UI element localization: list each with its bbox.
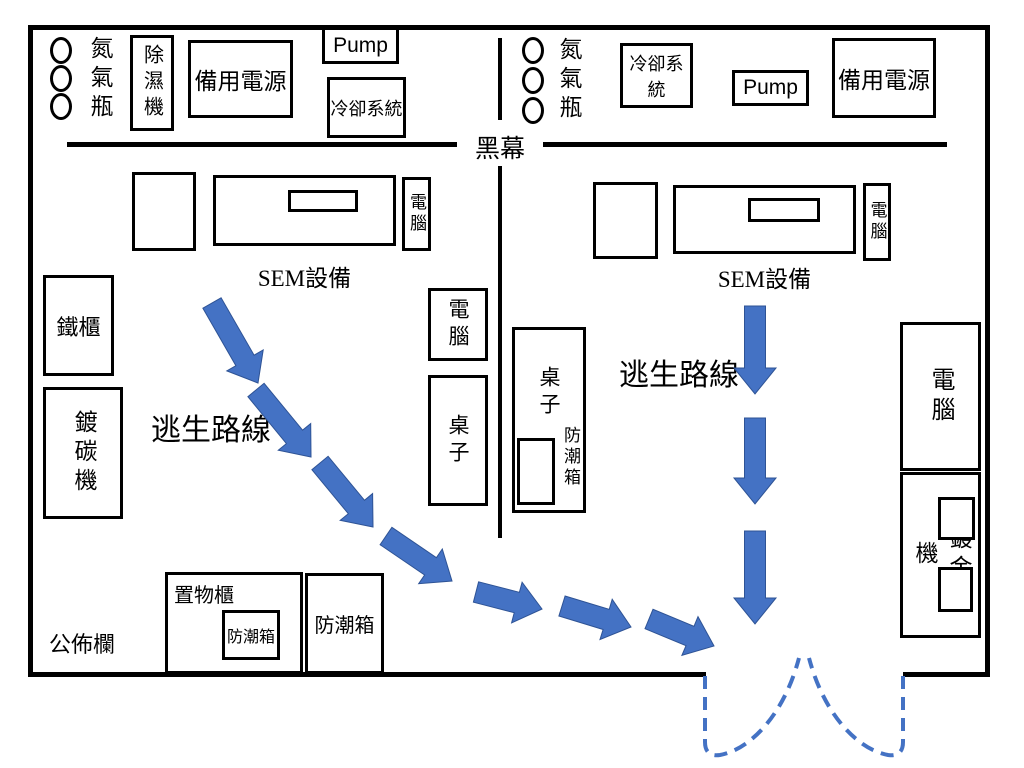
cooling-right-box: 冷卻系統 — [620, 43, 693, 108]
pump-left-label: Pump — [333, 34, 388, 58]
gas-bottle-circle — [522, 67, 544, 94]
table-right-label: 桌子 — [534, 366, 564, 420]
computer-sem-left-box: 電腦 — [402, 177, 431, 251]
wall-top — [28, 25, 990, 30]
escape-arrow — [734, 531, 776, 624]
table-mid-label: 桌子 — [443, 414, 473, 468]
drybox-storage-label: 防潮箱 — [227, 623, 275, 647]
computer-mid-box: 電腦 — [428, 288, 488, 361]
gas-bottle-circle — [50, 65, 72, 92]
sem-label-right: SEM設備 — [673, 260, 856, 294]
bulletin-board-label: 公佈欄 — [49, 627, 115, 659]
storage-cabinet-label: 置物櫃 — [174, 579, 234, 608]
sem-table-right-inner-rect — [748, 198, 820, 222]
sem-table-left — [213, 175, 396, 246]
pump-right-label: Pump — [743, 76, 798, 100]
cooling-left-box: 冷卻系統 — [327, 77, 406, 138]
drybox-table-outline — [517, 438, 555, 505]
curtain-line-top — [498, 38, 502, 120]
escape-route-right-label: 逃生路線 — [619, 350, 739, 394]
backup-power-right-box: 備用電源 — [832, 38, 936, 118]
carbon-coater-label: 鍍碳機 — [66, 410, 100, 497]
gold-coater-box: 鍍金機 — [900, 472, 981, 638]
backup-power-right-label: 備用電源 — [838, 61, 930, 95]
wall-left — [28, 25, 33, 677]
door-swing-dashed-line — [809, 658, 903, 755]
escape-arrow — [473, 582, 542, 623]
table-mid-box: 桌子 — [428, 375, 488, 506]
gas-bottle-circle — [522, 97, 544, 124]
cooling-right-label: 冷卻系統 — [623, 50, 690, 102]
gas-bottle-circle — [50, 37, 72, 64]
curtain-line-main — [498, 166, 502, 538]
sem-table-right — [673, 185, 856, 254]
computer-right-box: 電腦 — [900, 322, 981, 471]
pump-left-box: Pump — [322, 27, 399, 64]
drybox-bottom-box: 防潮箱 — [305, 573, 384, 674]
escape-arrow — [645, 609, 714, 655]
escape-arrow — [734, 306, 776, 394]
wall-bottom-right — [903, 672, 990, 677]
floor-plan: 氮氣瓶 氮氣瓶 除濕機 備用電源 Pump 冷卻系統 冷卻系統 Pump 備用電… — [0, 0, 1024, 768]
gold-coater-inner-square — [938, 567, 973, 612]
drybox-storage-box: 防潮箱 — [222, 610, 280, 660]
pump-right-box: Pump — [732, 70, 809, 106]
sem-table-left-inner-rect — [288, 190, 358, 212]
curtain-label: 黑幕 — [458, 129, 542, 165]
escape-arrow — [734, 418, 776, 504]
computer-sem-right-label: 電腦 — [865, 201, 890, 243]
gold-coater-inner-square — [938, 497, 975, 540]
computer-mid-label: 電腦 — [443, 298, 473, 352]
escape-arrow — [203, 298, 263, 383]
door-swing-dashed-line — [705, 658, 799, 755]
escape-route-left-label: 逃生路線 — [151, 405, 271, 449]
computer-sem-right-box: 電腦 — [863, 183, 891, 261]
partition-top-right — [543, 142, 947, 147]
drybox-bottom-label: 防潮箱 — [315, 609, 375, 638]
iron-cabinet-box: 鐵櫃 — [43, 275, 114, 376]
escape-arrow — [312, 456, 373, 527]
drybox-table-label: 防潮箱 — [558, 426, 583, 489]
gas-bottles-left-label: 氮氣瓶 — [82, 36, 116, 123]
carbon-coater-box: 鍍碳機 — [43, 387, 123, 519]
partition-top-left — [67, 142, 457, 147]
dehumidifier-label: 除濕機 — [138, 44, 167, 122]
sem-square-left — [132, 172, 196, 251]
cooling-left-label: 冷卻系統 — [331, 95, 403, 121]
escape-arrow — [380, 527, 452, 583]
storage-cabinet-box: 置物櫃 防潮箱 — [165, 572, 303, 674]
iron-cabinet-label: 鐵櫃 — [56, 310, 100, 342]
backup-power-left-label: 備用電源 — [195, 62, 287, 96]
gas-bottle-circle — [50, 93, 72, 120]
escape-arrow — [559, 596, 631, 640]
sem-label-left: SEM設備 — [213, 259, 396, 293]
gas-bottles-right-label: 氮氣瓶 — [551, 37, 585, 124]
table-right-box: 桌子 防潮箱 — [512, 327, 586, 513]
gas-bottle-circle — [522, 37, 544, 64]
backup-power-left-box: 備用電源 — [188, 40, 293, 118]
computer-right-label: 電腦 — [923, 367, 958, 427]
sem-square-right — [593, 182, 658, 259]
computer-sem-left-label: 電腦 — [404, 193, 429, 235]
dehumidifier-box: 除濕機 — [130, 35, 174, 131]
wall-right — [985, 25, 990, 677]
